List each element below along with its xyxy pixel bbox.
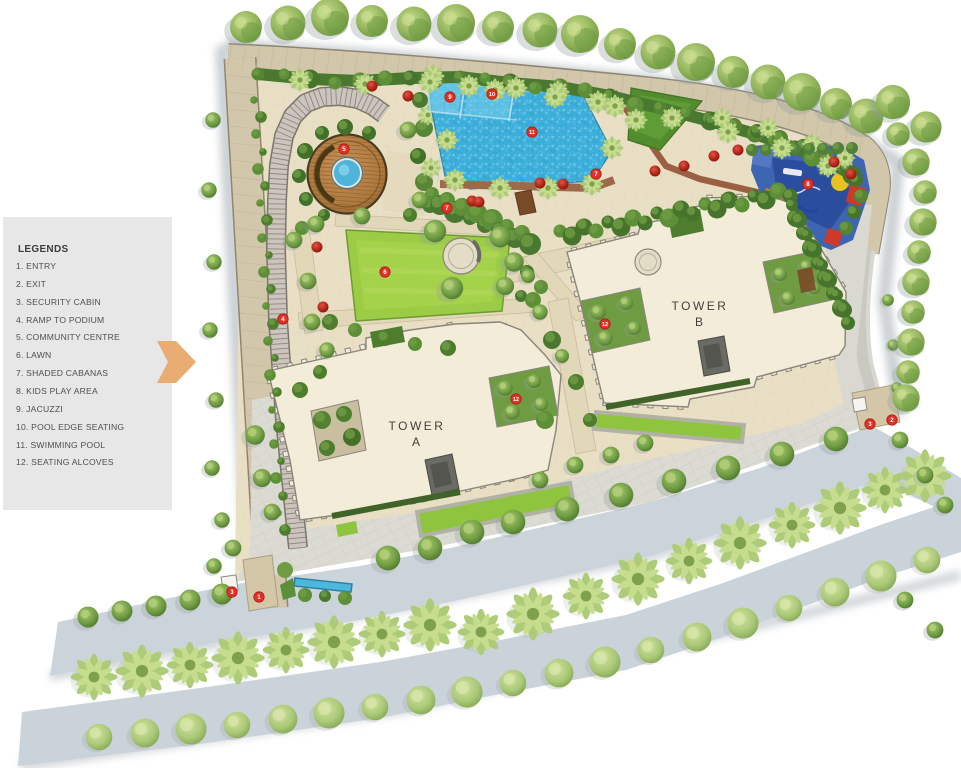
svg-text:3. SECURITY CABIN: 3. SECURITY CABIN: [16, 297, 101, 307]
svg-text:6. LAWN: 6. LAWN: [16, 350, 51, 360]
svg-text:LEGENDS: LEGENDS: [18, 244, 68, 255]
svg-text:7. SHADED CABANAS: 7. SHADED CABANAS: [16, 368, 108, 378]
svg-text:4: 4: [281, 316, 285, 323]
svg-text:9. JACUZZI: 9. JACUZZI: [16, 404, 63, 414]
svg-text:12: 12: [602, 322, 608, 328]
svg-text:2. EXIT: 2. EXIT: [16, 279, 47, 289]
svg-text:3: 3: [868, 421, 872, 428]
svg-text:6: 6: [383, 269, 387, 276]
svg-text:11: 11: [529, 130, 535, 136]
svg-text:2: 2: [890, 417, 894, 424]
svg-text:10. POOL EDGE SEATING: 10. POOL EDGE SEATING: [16, 422, 124, 432]
svg-text:12: 12: [513, 397, 519, 403]
svg-text:1: 1: [257, 594, 261, 601]
svg-text:9: 9: [448, 94, 452, 101]
svg-text:4. RAMP TO PODIUM: 4. RAMP TO PODIUM: [16, 315, 104, 325]
svg-text:A: A: [412, 435, 422, 449]
svg-text:8. KIDS PLAY AREA: 8. KIDS PLAY AREA: [16, 386, 98, 396]
svg-text:B: B: [695, 315, 705, 329]
svg-text:TOWER: TOWER: [672, 299, 729, 313]
svg-text:TOWER: TOWER: [389, 419, 446, 433]
svg-text:7: 7: [594, 171, 598, 178]
svg-text:10: 10: [489, 92, 495, 98]
svg-text:8: 8: [806, 181, 810, 188]
svg-text:3: 3: [230, 589, 234, 596]
svg-text:12. SEATING ALCOVES: 12. SEATING ALCOVES: [16, 457, 114, 467]
svg-text:11. SWIMMING POOL: 11. SWIMMING POOL: [16, 440, 105, 450]
svg-text:7: 7: [445, 205, 449, 212]
svg-text:5. COMMUNITY CENTRE: 5. COMMUNITY CENTRE: [16, 332, 120, 342]
svg-text:5: 5: [342, 146, 346, 153]
svg-text:1. ENTRY: 1. ENTRY: [16, 261, 56, 271]
